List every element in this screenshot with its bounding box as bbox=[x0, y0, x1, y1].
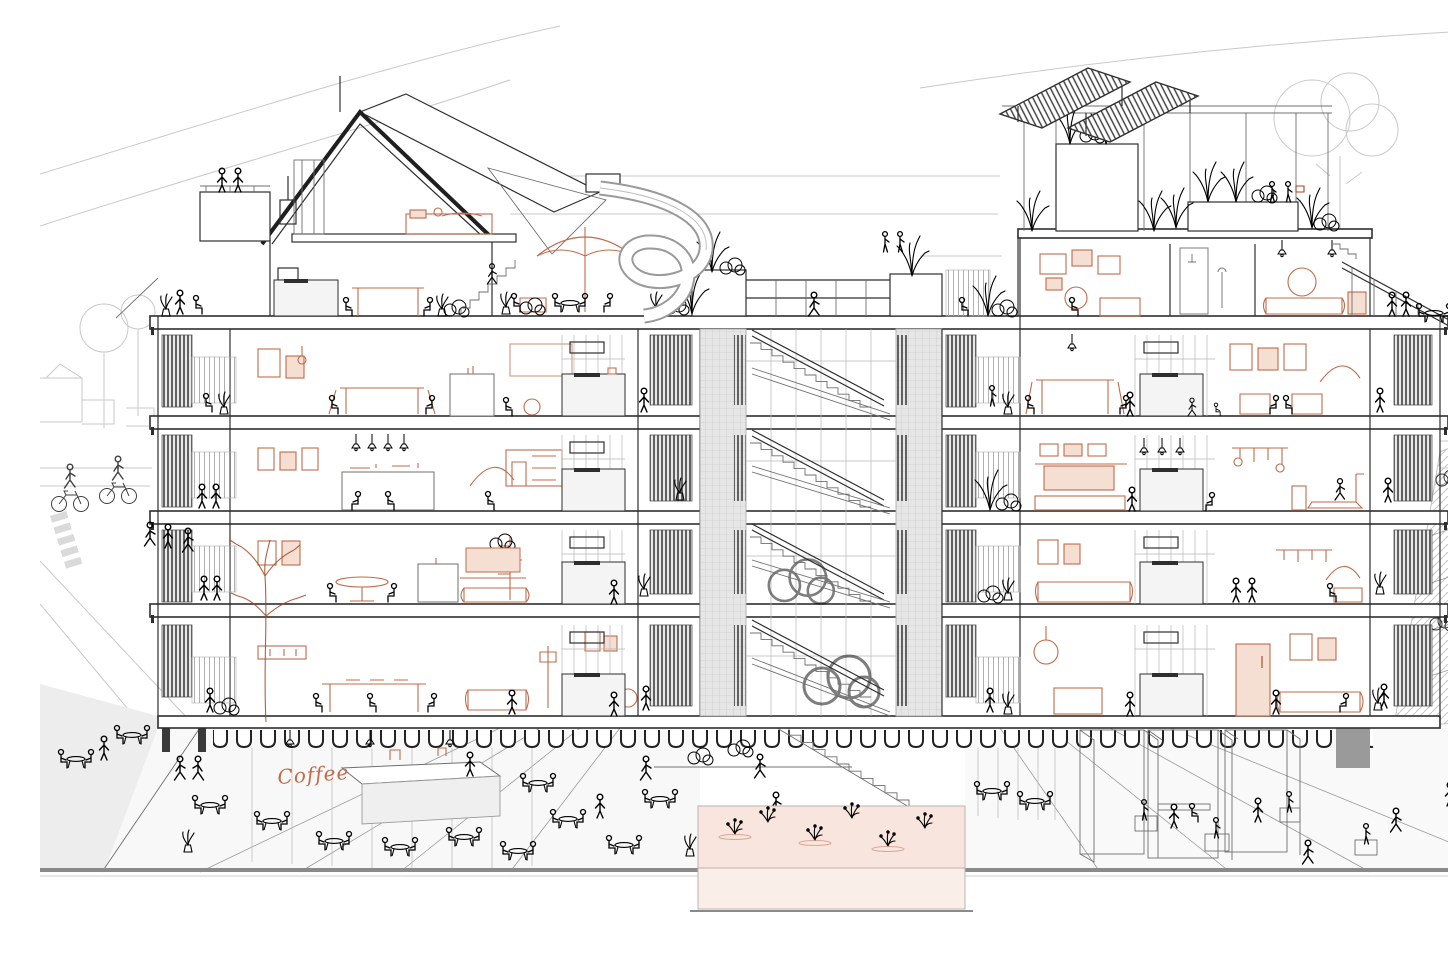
left-wing-left-balconies bbox=[162, 335, 239, 715]
bicycle-icon bbox=[52, 491, 89, 512]
penthouse-bedroom bbox=[1264, 240, 1367, 314]
rear-roof-plane bbox=[360, 94, 600, 212]
roof-house bbox=[116, 76, 709, 318]
left-wing-kitchens bbox=[562, 335, 625, 716]
pond-front-face bbox=[698, 868, 965, 909]
planter-bed bbox=[1188, 202, 1298, 231]
section-illustration: Cross-section illustration of a multi-st… bbox=[40, 16, 1448, 953]
solar-panels bbox=[1000, 68, 1198, 142]
spiral-slide bbox=[586, 174, 706, 316]
service-core bbox=[1336, 728, 1370, 768]
terrace-seating bbox=[512, 294, 613, 313]
bed bbox=[406, 208, 492, 234]
house-main-room bbox=[274, 260, 515, 317]
left-apartment-1 bbox=[258, 344, 572, 416]
background-houses bbox=[40, 364, 154, 426]
left-apartment-3 bbox=[258, 534, 529, 602]
penthouse-study bbox=[1040, 250, 1140, 316]
atrium bbox=[692, 232, 942, 716]
orange-tree bbox=[230, 540, 306, 722]
gardeners bbox=[1270, 182, 1304, 202]
penthouse-balcony-left bbox=[946, 270, 1017, 317]
water-garden bbox=[690, 803, 973, 911]
house-left-volume bbox=[116, 168, 270, 318]
right-wing-kitchens bbox=[1126, 335, 1216, 716]
crosswalk bbox=[50, 511, 82, 569]
cafe-sign: Coffee bbox=[277, 760, 350, 789]
right-wing bbox=[942, 68, 1448, 716]
tall-cabinet bbox=[1236, 644, 1270, 716]
edge-sitters bbox=[883, 232, 904, 252]
tall-planter bbox=[1056, 144, 1138, 231]
penthouse-bathroom bbox=[1180, 248, 1226, 314]
person-on-bridge bbox=[809, 292, 820, 316]
left-apartment-2 bbox=[258, 434, 562, 510]
treadmill bbox=[1308, 474, 1364, 508]
